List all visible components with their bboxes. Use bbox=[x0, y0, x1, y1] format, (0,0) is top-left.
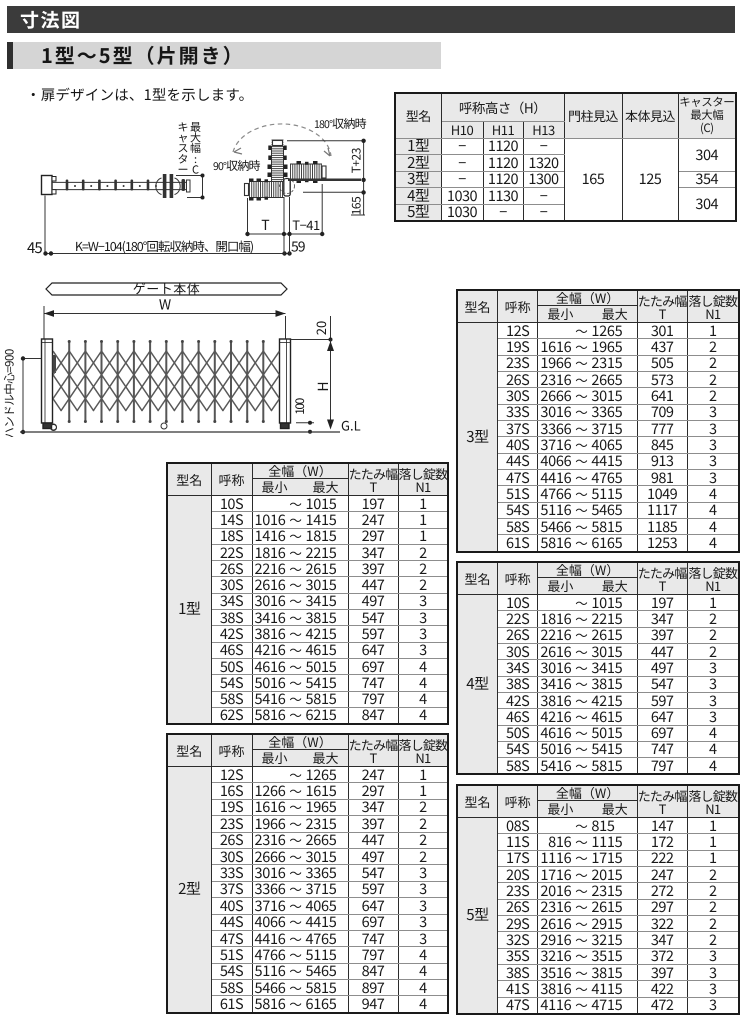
svg-text:45: 45 bbox=[27, 237, 42, 258]
svg-text:W: W bbox=[159, 295, 171, 315]
svg-text:100: 100 bbox=[291, 397, 308, 414]
svg-text:K=W−104(180°回転収納時、開口幅): K=W−104(180°回転収納時、開口幅) bbox=[75, 236, 254, 255]
svg-text:180°収納時: 180°収納時 bbox=[314, 115, 367, 132]
svg-text:165: 165 bbox=[347, 196, 364, 215]
svg-text:ハンドル中心=900: ハンドル中心=900 bbox=[2, 349, 18, 437]
svg-text:20: 20 bbox=[311, 321, 330, 335]
svg-text:T+23: T+23 bbox=[347, 148, 364, 173]
svg-text:G.L: G.L bbox=[341, 416, 361, 435]
svg-text:90°収納時: 90°収納時 bbox=[213, 157, 261, 174]
svg-text:T: T bbox=[261, 215, 269, 235]
svg-text:T−41: T−41 bbox=[292, 215, 320, 234]
svg-text:H: H bbox=[313, 381, 333, 391]
svg-text:59: 59 bbox=[291, 237, 306, 257]
